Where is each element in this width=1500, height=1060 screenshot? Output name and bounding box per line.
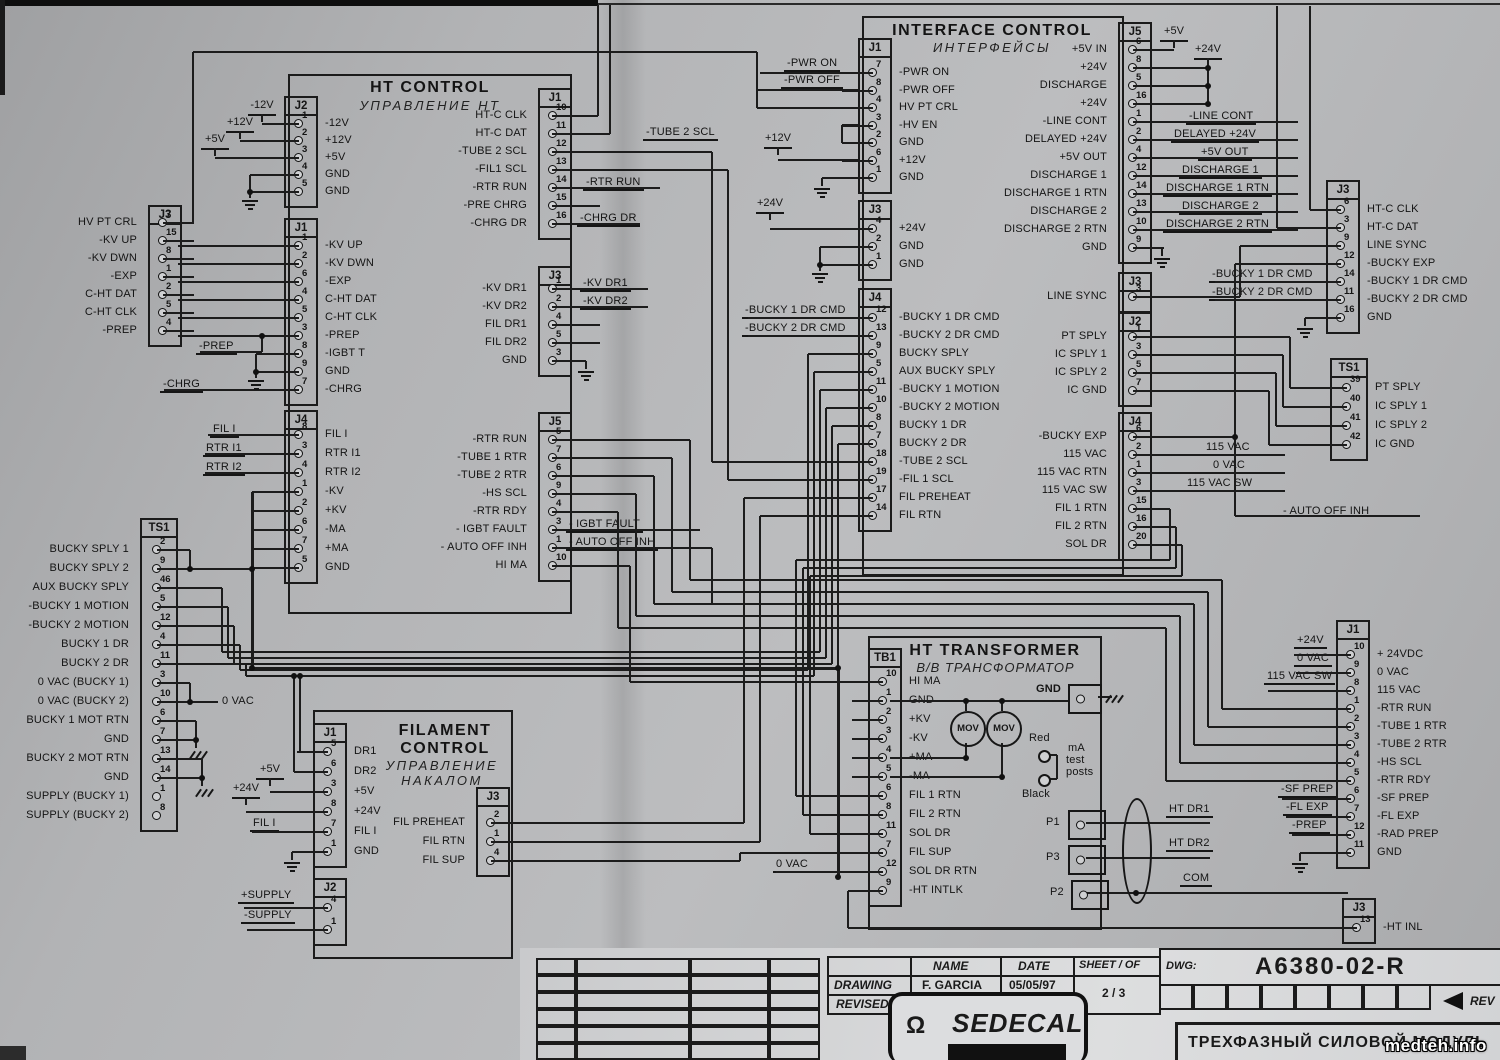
connector-name: J3 bbox=[1328, 182, 1358, 200]
wire bbox=[291, 852, 293, 860]
tb-drawing-date: 05/05/97 bbox=[1009, 978, 1056, 992]
tb-drawing-name: F. GARCIA bbox=[922, 978, 982, 992]
pin-label: -HT INTLK bbox=[909, 884, 963, 896]
junction-dot bbox=[259, 333, 265, 339]
wire bbox=[1234, 437, 1236, 516]
pin-label: -MA bbox=[325, 523, 346, 535]
wire bbox=[1148, 544, 1182, 546]
wire bbox=[1181, 545, 1183, 576]
wire bbox=[1292, 834, 1336, 836]
pin-label: DISCHARGE 1 bbox=[1030, 169, 1107, 181]
pin-number: 4 bbox=[876, 215, 881, 226]
ext-label: HT DR2 bbox=[1166, 837, 1213, 852]
pin-number: 3 bbox=[302, 322, 307, 333]
wire bbox=[796, 795, 868, 797]
pin-label: GND bbox=[899, 240, 924, 252]
wire bbox=[1277, 227, 1326, 229]
pin-label: +12V bbox=[899, 154, 926, 166]
connector-name: J2 bbox=[286, 98, 316, 116]
wire bbox=[1148, 354, 1283, 356]
pin-number: 2 bbox=[886, 706, 891, 717]
pin-label: + 24VDC bbox=[1377, 648, 1423, 660]
junction-dot bbox=[249, 665, 255, 671]
tb-rev-label: REV bbox=[1470, 994, 1495, 1008]
pin-label: +24V bbox=[899, 222, 926, 234]
pin-label: 0 VAC (BUCKY 2) bbox=[38, 695, 129, 707]
wire bbox=[770, 228, 858, 230]
wire bbox=[292, 851, 313, 853]
connector-name: J3 bbox=[860, 202, 890, 220]
wire bbox=[636, 615, 1180, 617]
junction-dot bbox=[247, 189, 253, 195]
junction-dot bbox=[1232, 434, 1238, 440]
pin-number: 4 bbox=[1136, 144, 1141, 155]
wire bbox=[852, 757, 883, 759]
wire bbox=[1300, 852, 1336, 854]
pin-number: 7 bbox=[556, 444, 561, 455]
wire bbox=[552, 205, 600, 207]
wire bbox=[842, 124, 858, 126]
pin-number: 10 bbox=[556, 552, 567, 563]
wire bbox=[164, 389, 284, 391]
pin-number: 1 bbox=[494, 828, 499, 839]
pin-label: -BUCKY 1 MOTION bbox=[28, 600, 129, 612]
revision-grid-cell bbox=[690, 1043, 769, 1060]
connector-fil-j1: J1 bbox=[313, 723, 347, 868]
wire bbox=[776, 871, 868, 873]
pin-number: 12 bbox=[1344, 250, 1355, 261]
pin-label: -KV DR2 bbox=[482, 300, 527, 312]
pin-number: 3 bbox=[1136, 477, 1141, 488]
terminal-p2 bbox=[1071, 880, 1109, 910]
ext-label: FIL I bbox=[250, 817, 279, 832]
terminal-p1-label: P1 bbox=[1046, 816, 1060, 828]
wire bbox=[1310, 209, 1326, 211]
pin-number: 2 bbox=[494, 809, 499, 820]
pin-number: 8 bbox=[331, 798, 336, 809]
wire bbox=[1215, 299, 1326, 301]
pin-label: 115 VAC bbox=[1063, 448, 1107, 460]
wire bbox=[244, 907, 313, 909]
pin-label: FIL PREHEAT bbox=[899, 491, 971, 503]
pin-number: 11 bbox=[1344, 286, 1354, 297]
pin-label: LINE SYNC bbox=[1367, 239, 1427, 251]
pin-label: FIL DR1 bbox=[485, 318, 527, 330]
wire bbox=[1148, 103, 1208, 105]
pin-label: GND bbox=[1082, 241, 1107, 253]
wire bbox=[252, 491, 284, 493]
wire bbox=[163, 276, 194, 278]
pin-label: C-HT DAT bbox=[85, 288, 137, 300]
wire bbox=[178, 299, 284, 301]
wire bbox=[178, 701, 218, 703]
pin-number: 19 bbox=[876, 466, 887, 477]
ext-label: COM bbox=[1180, 872, 1212, 887]
connector-name: J1 bbox=[286, 220, 316, 238]
wire bbox=[552, 133, 610, 135]
pin-number: 1 bbox=[876, 251, 881, 262]
wire bbox=[808, 353, 858, 355]
wire bbox=[852, 738, 883, 740]
revision-grid-cell bbox=[769, 1043, 820, 1060]
terminal-p1 bbox=[1068, 810, 1106, 840]
wire bbox=[178, 263, 284, 265]
rev-strip-cell bbox=[1397, 984, 1431, 1010]
wire bbox=[585, 361, 587, 369]
pin-label: -CHRG DR bbox=[470, 217, 527, 229]
pin-label: -KV UP bbox=[325, 239, 363, 251]
wire bbox=[609, 5, 611, 134]
revision-grid-cell bbox=[769, 958, 820, 975]
wire bbox=[178, 606, 228, 608]
pin-number: 3 bbox=[1136, 341, 1141, 352]
junction-dot bbox=[1205, 83, 1211, 89]
pin-label: -RTR RUN bbox=[472, 433, 527, 445]
revision-grid-cell bbox=[769, 1009, 820, 1026]
pin-number: 41 bbox=[1350, 412, 1361, 423]
wire bbox=[252, 529, 284, 531]
pin-label: -FIL 1 SCL bbox=[899, 473, 954, 485]
junction-dot bbox=[199, 775, 205, 781]
junction-dot bbox=[253, 369, 259, 375]
pin-number: 46 bbox=[160, 574, 171, 585]
revision-grid-cell bbox=[536, 1009, 576, 1026]
power-rail: +5V bbox=[256, 760, 284, 780]
revision-grid-cell bbox=[576, 958, 690, 975]
pin-number: 7 bbox=[886, 839, 891, 850]
pin-number: 1 bbox=[886, 687, 891, 698]
pin-number: 11 bbox=[556, 120, 566, 131]
wire bbox=[163, 258, 194, 260]
pin-number: 8 bbox=[302, 421, 307, 432]
wire bbox=[1148, 67, 1208, 69]
pin-number: 17 bbox=[876, 484, 887, 495]
wire bbox=[711, 548, 713, 604]
wire bbox=[262, 123, 284, 125]
ground-icon bbox=[814, 188, 830, 200]
wire bbox=[552, 169, 728, 171]
pin-number: 14 bbox=[1136, 180, 1147, 191]
wire bbox=[247, 929, 313, 931]
pin-number: 12 bbox=[1354, 821, 1365, 832]
wire bbox=[1221, 580, 1223, 709]
connector-name: J2 bbox=[315, 880, 345, 898]
wire bbox=[1194, 744, 1336, 746]
wire bbox=[813, 372, 815, 676]
pin-number: 8 bbox=[886, 801, 891, 812]
connector-name: J4 bbox=[1120, 414, 1150, 432]
wire bbox=[810, 575, 1182, 577]
connector-name: J5 bbox=[540, 414, 570, 432]
rev-strip-cell bbox=[1295, 984, 1329, 1010]
pin-number: 4 bbox=[160, 631, 165, 642]
wire bbox=[795, 560, 797, 796]
wire bbox=[814, 371, 858, 373]
wire bbox=[821, 178, 823, 186]
pin-number: 3 bbox=[160, 669, 165, 680]
pin-number: 15 bbox=[166, 227, 177, 238]
pin-number: 4 bbox=[302, 459, 307, 470]
rail-label: +24V bbox=[1195, 43, 1221, 55]
pin-label: BUCKY SPLY bbox=[899, 347, 969, 359]
pin-label: IC SPLY 2 bbox=[1375, 419, 1427, 431]
ground-icon bbox=[284, 862, 300, 874]
pin-label: +5V IN bbox=[1072, 43, 1107, 55]
wire bbox=[820, 264, 858, 266]
wire bbox=[1240, 245, 1326, 247]
pin-number: 4 bbox=[556, 498, 561, 509]
connector-name: J3 bbox=[1120, 274, 1150, 292]
wire bbox=[293, 676, 295, 772]
power-rail: +5V bbox=[1160, 22, 1188, 42]
pin-number: 3 bbox=[1136, 283, 1141, 294]
pin-number: 3 bbox=[1344, 214, 1349, 225]
wire bbox=[256, 371, 284, 373]
wire bbox=[205, 472, 284, 474]
pin-label: SOL DR RTN bbox=[909, 865, 977, 877]
wire bbox=[831, 426, 833, 664]
pin-number: 1 bbox=[166, 263, 171, 274]
pin-number: 11 bbox=[886, 820, 896, 831]
pin-number: 5 bbox=[331, 738, 336, 749]
test-post-red-label: Red bbox=[1029, 732, 1050, 744]
pin-label: -PRE CHRG bbox=[463, 199, 527, 211]
rev-strip-cell bbox=[1159, 984, 1193, 1010]
tb-sheet-header: SHEET / OF bbox=[1079, 959, 1140, 971]
wire bbox=[653, 476, 655, 604]
pin-label: -BUCKY 2 DR CMD bbox=[899, 329, 1000, 341]
pin-label: DISCHARGE 1 RTN bbox=[1004, 187, 1107, 199]
tb-date-header: DATE bbox=[1018, 959, 1050, 973]
pin-label: -TUBE 1 RTR bbox=[1377, 720, 1447, 732]
wire bbox=[193, 51, 757, 53]
pin-label: - AUTO OFF INH bbox=[441, 541, 527, 553]
wire bbox=[178, 644, 240, 646]
wire bbox=[672, 591, 1208, 593]
connector-name: J1 bbox=[315, 725, 345, 743]
wire bbox=[739, 853, 741, 861]
wire bbox=[597, 5, 599, 116]
pin-number: 18 bbox=[876, 448, 887, 459]
pin-label: 0 VAC (BUCKY 1) bbox=[38, 676, 129, 688]
pin-number: 1 bbox=[556, 275, 561, 286]
wire bbox=[803, 567, 1176, 569]
pin-number: 9 bbox=[876, 340, 881, 351]
wire bbox=[261, 114, 263, 122]
pin-number: 5 bbox=[302, 304, 307, 315]
pin-number: 13 bbox=[556, 156, 567, 167]
pin-label: SOL DR bbox=[1065, 538, 1107, 550]
pin-number: 1 bbox=[556, 534, 561, 545]
wire bbox=[552, 457, 672, 459]
pin-label: -HV EN bbox=[899, 119, 937, 131]
wire bbox=[221, 588, 223, 652]
wire bbox=[1289, 337, 1291, 388]
wire bbox=[508, 822, 744, 824]
pin-number: 15 bbox=[1136, 495, 1147, 506]
pin-label: -TUBE 2 SCL bbox=[899, 455, 968, 467]
pin-number: 7 bbox=[302, 535, 307, 546]
wire bbox=[825, 408, 827, 658]
junction-dot bbox=[1205, 65, 1211, 71]
wire bbox=[777, 147, 779, 155]
pin-number: 20 bbox=[1136, 531, 1147, 542]
pin-number: 14 bbox=[876, 502, 887, 513]
wire bbox=[163, 240, 194, 242]
pin-number: 4 bbox=[494, 847, 499, 858]
pin-number: 8 bbox=[1354, 677, 1359, 688]
pin-label: C-HT CLK bbox=[325, 311, 377, 323]
pin-number: 1 bbox=[331, 838, 336, 849]
wire bbox=[1180, 762, 1336, 764]
pin-label: -BUCKY 2 DR CMD bbox=[1367, 293, 1468, 305]
wire bbox=[740, 852, 868, 854]
pin-label: -BUCKY EXP bbox=[1039, 430, 1107, 442]
revision-grid-cell bbox=[576, 975, 690, 992]
pin-label: -KV DWN bbox=[325, 257, 374, 269]
pin-label: FIL 1 RTN bbox=[909, 789, 961, 801]
pin-label: HI MA bbox=[495, 559, 527, 571]
wire bbox=[552, 187, 660, 189]
wire bbox=[1296, 672, 1336, 674]
wire bbox=[552, 288, 648, 290]
wire bbox=[252, 667, 838, 670]
pin-number: 3 bbox=[876, 112, 881, 123]
pin-number: 2 bbox=[1354, 713, 1359, 724]
wire bbox=[1148, 472, 1285, 474]
wire bbox=[1239, 246, 1241, 297]
wire bbox=[630, 681, 868, 683]
wire bbox=[1148, 436, 1235, 438]
pin-number: 4 bbox=[886, 744, 891, 755]
pin-number: 3 bbox=[556, 347, 561, 358]
wire bbox=[251, 492, 254, 668]
pin-number: 5 bbox=[1354, 767, 1359, 778]
pin-number: 3 bbox=[302, 440, 307, 451]
pin-number: 6 bbox=[302, 516, 307, 527]
pin-label: -PREP bbox=[325, 329, 360, 341]
pin-number: 8 bbox=[876, 77, 881, 88]
pin-number: 16 bbox=[556, 210, 567, 221]
pin-number: 16 bbox=[1344, 304, 1355, 315]
wire bbox=[852, 719, 883, 721]
pin-number: 12 bbox=[1136, 162, 1147, 173]
pin-number: 7 bbox=[160, 726, 165, 737]
pin-label: HT-C DAT bbox=[1367, 221, 1419, 233]
wire bbox=[1304, 318, 1306, 326]
pin-number: 2 bbox=[556, 293, 561, 304]
wire bbox=[178, 281, 284, 283]
wire bbox=[250, 174, 284, 176]
tb-dwg-number: A6380-02-R bbox=[1255, 953, 1406, 981]
pin-number: 5 bbox=[556, 329, 561, 340]
junction-dot bbox=[817, 262, 823, 268]
pin-number: 4 bbox=[302, 286, 307, 297]
pin-number: 39 bbox=[1350, 374, 1361, 385]
connector-name: J4 bbox=[286, 412, 316, 430]
wire bbox=[178, 317, 284, 319]
wire bbox=[163, 330, 194, 332]
cable-bundle-ellipse bbox=[1122, 798, 1152, 904]
pin-label: -PWR ON bbox=[899, 66, 949, 78]
pin-label: +12V bbox=[325, 134, 352, 146]
power-rail: +12V bbox=[226, 113, 254, 133]
pin-number: 3 bbox=[556, 516, 561, 527]
pin-number: 2 bbox=[1136, 126, 1141, 137]
pin-number: 6 bbox=[1136, 36, 1141, 47]
wire bbox=[796, 559, 1170, 561]
wire bbox=[178, 245, 284, 247]
connector-int-j1: J1 bbox=[858, 38, 892, 194]
pin-label: GND bbox=[325, 168, 350, 180]
wire bbox=[163, 294, 194, 296]
pin-number: 5 bbox=[166, 299, 171, 310]
wire bbox=[819, 390, 821, 652]
ext-label: -PWR ON bbox=[784, 57, 840, 72]
wire bbox=[852, 700, 883, 702]
pin-number: 12 bbox=[886, 858, 897, 869]
pin-number: 7 bbox=[876, 59, 881, 70]
junction-dot bbox=[187, 699, 193, 705]
wire bbox=[744, 497, 858, 499]
pin-label: -KV DWN bbox=[88, 252, 137, 264]
pin-label: DISCHARGE 2 bbox=[1030, 205, 1107, 217]
wire bbox=[552, 151, 712, 153]
wire bbox=[1148, 247, 1162, 249]
schematic-page: HT CONTROL УПРАВЛЕНИЕ НТ INTERFACE CONTR… bbox=[0, 0, 1500, 1060]
pin-label: HT-C DAT bbox=[475, 127, 527, 139]
block-title-filament-control: FILAMENT CONTROL bbox=[385, 722, 505, 758]
pin-number: 14 bbox=[160, 764, 171, 775]
connector-fil-j2: J2 bbox=[313, 878, 347, 946]
wire bbox=[1282, 355, 1284, 407]
wire bbox=[552, 565, 630, 567]
wire bbox=[228, 657, 826, 659]
wire bbox=[727, 170, 729, 480]
pin-number: 14 bbox=[1344, 268, 1355, 279]
pin-label: IC SPLY 2 bbox=[1055, 366, 1107, 378]
pin-number: 15 bbox=[556, 192, 567, 203]
pin-number: 13 bbox=[1360, 914, 1371, 925]
ground-icon bbox=[248, 380, 264, 392]
pin-label: -HT INL bbox=[1383, 921, 1423, 933]
wire bbox=[748, 335, 858, 337]
junction-dot bbox=[999, 774, 1005, 780]
pin-number: 1 bbox=[302, 478, 307, 489]
wire bbox=[756, 52, 758, 108]
wire bbox=[239, 131, 241, 139]
wire bbox=[1086, 892, 1348, 894]
wire bbox=[1148, 508, 1170, 510]
wire bbox=[759, 516, 761, 842]
pin-label: GND bbox=[1377, 846, 1402, 858]
pin-label: -KV bbox=[909, 732, 928, 744]
pin-number: 3 bbox=[331, 778, 336, 789]
pin-label: PT SPLY bbox=[1061, 330, 1107, 342]
pin-label: DISCHARGE 2 RTN bbox=[1004, 223, 1107, 235]
wire bbox=[635, 494, 637, 616]
junction-dot bbox=[999, 698, 1005, 704]
pin-number: 9 bbox=[1344, 232, 1349, 243]
pin-label: SOL DR bbox=[909, 827, 951, 839]
wire bbox=[848, 927, 1342, 929]
pin-label: +5V bbox=[325, 151, 345, 163]
pin-number: 6 bbox=[160, 707, 165, 718]
pin-label: +KV bbox=[325, 504, 347, 516]
earth-ground-icon bbox=[188, 750, 206, 760]
pin-label: -RTR RDY bbox=[1377, 774, 1431, 786]
pin-number: 5 bbox=[160, 593, 165, 604]
